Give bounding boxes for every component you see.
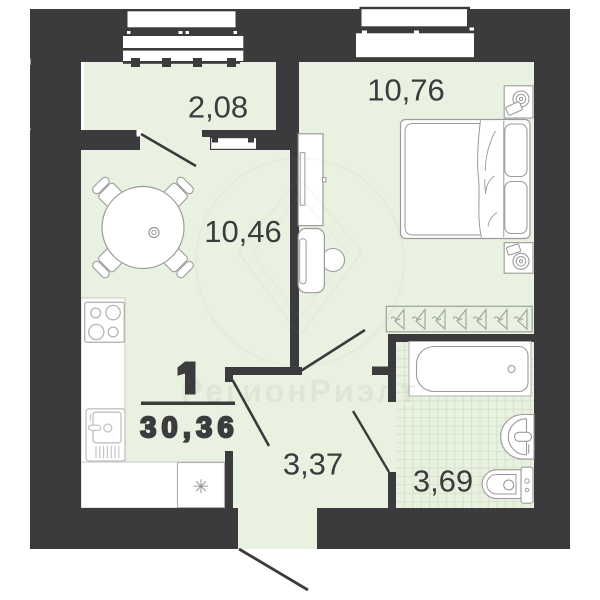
svg-text:10,76: 10,76	[367, 73, 445, 108]
svg-text:3,69: 3,69	[413, 464, 473, 499]
svg-text:10,46: 10,46	[204, 214, 282, 249]
svg-text:2,08: 2,08	[188, 90, 248, 125]
svg-text:3,37: 3,37	[283, 447, 343, 482]
svg-text:30,36: 30,36	[140, 412, 239, 444]
